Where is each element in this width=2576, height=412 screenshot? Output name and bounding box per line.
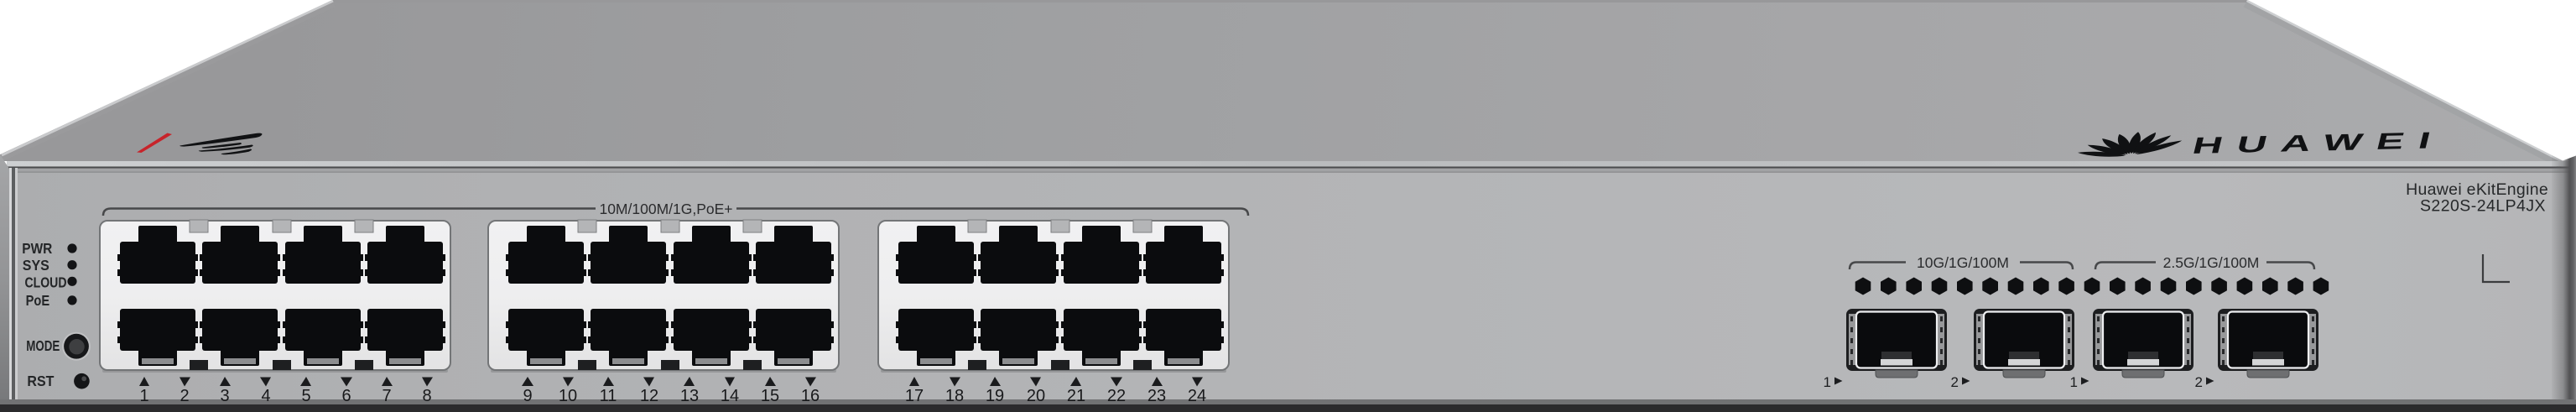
svg-text:14: 14 (721, 387, 739, 405)
svg-text:13: 13 (680, 387, 699, 405)
svg-text:RST: RST (27, 373, 54, 389)
svg-text:CLOUD: CLOUD (25, 274, 67, 291)
svg-text:PoE: PoE (26, 292, 49, 309)
svg-text:21: 21 (1067, 387, 1085, 405)
svg-text:SYS: SYS (23, 257, 49, 274)
svg-text:4: 4 (261, 387, 270, 405)
svg-text:17: 17 (905, 387, 924, 405)
svg-text:9: 9 (523, 387, 532, 405)
svg-text:1: 1 (139, 387, 148, 405)
svg-text:1: 1 (1824, 374, 1831, 390)
svg-text:2.5G/1G/100M: 2.5G/1G/100M (2163, 254, 2260, 271)
svg-text:12: 12 (640, 387, 658, 405)
svg-text:6: 6 (341, 387, 351, 405)
svg-text:2: 2 (180, 387, 189, 405)
svg-text:11: 11 (600, 387, 617, 405)
svg-text:19: 19 (986, 387, 1004, 405)
svg-text:18: 18 (945, 387, 964, 405)
svg-text:23: 23 (1147, 387, 1166, 405)
svg-text:10: 10 (559, 387, 577, 405)
svg-text:8: 8 (422, 387, 431, 405)
svg-text:2: 2 (1951, 374, 1959, 390)
svg-text:10M/100M/1G,PoE+: 10M/100M/1G,PoE+ (599, 201, 732, 217)
svg-text:7: 7 (382, 387, 391, 405)
svg-text:16: 16 (801, 387, 820, 405)
svg-text:15: 15 (761, 387, 779, 405)
svg-text:1: 1 (2070, 374, 2078, 390)
svg-text:PWR: PWR (22, 240, 52, 257)
svg-text:2: 2 (2195, 374, 2203, 390)
svg-text:3: 3 (220, 387, 229, 405)
svg-text:MODE: MODE (26, 337, 60, 354)
svg-text:22: 22 (1107, 387, 1126, 405)
svg-text:5: 5 (301, 387, 310, 405)
svg-text:S220S-24LP4JX: S220S-24LP4JX (2420, 197, 2546, 216)
svg-text:24: 24 (1188, 387, 1206, 405)
svg-text:10G/1G/100M: 10G/1G/100M (1917, 254, 2009, 271)
svg-text:20: 20 (1027, 387, 1045, 405)
